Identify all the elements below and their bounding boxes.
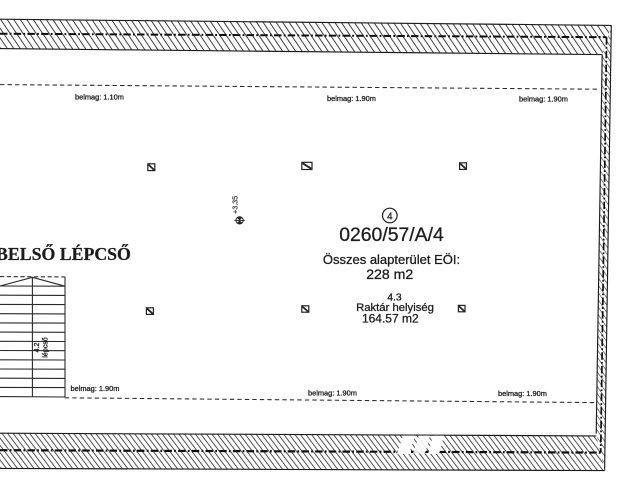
svg-text:belmag: 1.90m: belmag: 1.90m [327, 94, 376, 103]
svg-text:BELSŐ LÉPCSŐ: BELSŐ LÉPCSŐ [0, 243, 131, 264]
svg-text:228 m2: 228 m2 [366, 266, 413, 282]
svg-text:Összes alapterület EÖI:: Összes alapterület EÖI: [323, 252, 460, 267]
svg-text:+3.35: +3.35 [231, 196, 240, 214]
svg-text:belmag: 1.90m: belmag: 1.90m [308, 388, 357, 397]
svg-text:belmag: 1.90m: belmag: 1.90m [71, 384, 120, 393]
svg-text:164.57 m2: 164.57 m2 [362, 311, 419, 325]
svg-text:belmag: 1.90m: belmag: 1.90m [519, 95, 568, 104]
svg-text:lépcső: lépcső [43, 337, 50, 357]
svg-text:4.2: 4.2 [34, 343, 41, 353]
svg-text:4: 4 [387, 211, 393, 222]
svg-text:belmag: 1.90m: belmag: 1.90m [498, 389, 547, 398]
svg-text:0260/57/A/4: 0260/57/A/4 [339, 224, 444, 246]
svg-text:belmag: 1.10m: belmag: 1.10m [75, 93, 124, 102]
